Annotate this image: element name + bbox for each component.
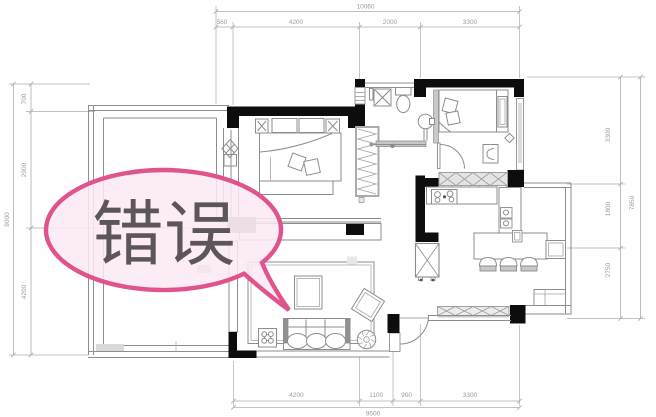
svg-text:700: 700 (21, 93, 28, 104)
svg-text:10060: 10060 (356, 4, 374, 11)
svg-text:7850: 7850 (629, 195, 636, 210)
svg-text:560: 560 (217, 19, 228, 26)
svg-text:900: 900 (401, 392, 412, 399)
svg-text:3300: 3300 (463, 392, 478, 399)
svg-text:1800: 1800 (605, 201, 612, 216)
svg-text:1100: 1100 (369, 392, 383, 399)
svg-text:4200: 4200 (289, 392, 304, 399)
svg-text:9000: 9000 (4, 212, 11, 227)
svg-text:9500: 9500 (366, 411, 381, 417)
svg-text:4200: 4200 (21, 284, 28, 299)
svg-text:2900: 2900 (21, 162, 28, 177)
svg-text:2000: 2000 (383, 19, 398, 26)
svg-text:4200: 4200 (289, 19, 304, 26)
svg-text:3300: 3300 (463, 19, 478, 26)
svg-text:2750: 2750 (605, 262, 612, 277)
svg-text:3300: 3300 (605, 127, 612, 142)
